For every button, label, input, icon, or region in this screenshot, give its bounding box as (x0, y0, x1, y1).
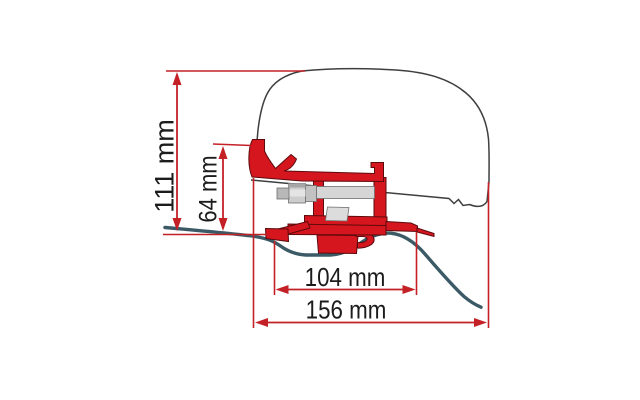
bolt-washer (306, 186, 317, 202)
base-right-arm (386, 222, 418, 232)
bracket-hook-rail (249, 140, 384, 182)
adapter-base (266, 222, 435, 254)
adapter-bracket (249, 140, 387, 229)
arrow-left-icon (276, 285, 289, 294)
dimension-label-total-height: 111 mm (149, 119, 179, 213)
extension-line-hook-top (213, 144, 251, 146)
bolt-hex-nut (289, 184, 306, 204)
dimension-label-bracket-height: 64 mm (194, 155, 222, 222)
base-right-wedge (417, 228, 434, 237)
diagram-canvas: 111 mm 64 mm 104 mm (0, 0, 640, 400)
dimension-label-overall-width: 156 mm (306, 296, 387, 325)
arrow-right-icon (474, 318, 487, 327)
spacer-block (326, 207, 350, 221)
adapter-dimension-drawing: 111 mm 64 mm 104 mm (0, 0, 640, 400)
arrow-left-icon (255, 318, 268, 327)
arrow-up-icon (173, 72, 182, 85)
bolt-shaft (317, 187, 375, 199)
bolt-tip (277, 188, 289, 199)
mounting-bolt (277, 184, 375, 222)
arrow-right-icon (403, 285, 416, 294)
vehicle-outline (251, 69, 489, 207)
dimension-total-height: 111 mm (149, 71, 305, 235)
base-center-block (317, 235, 358, 254)
dimension-label-bracket-width: 104 mm (305, 264, 386, 293)
dimension-bracket-height: 64 mm (194, 144, 251, 231)
